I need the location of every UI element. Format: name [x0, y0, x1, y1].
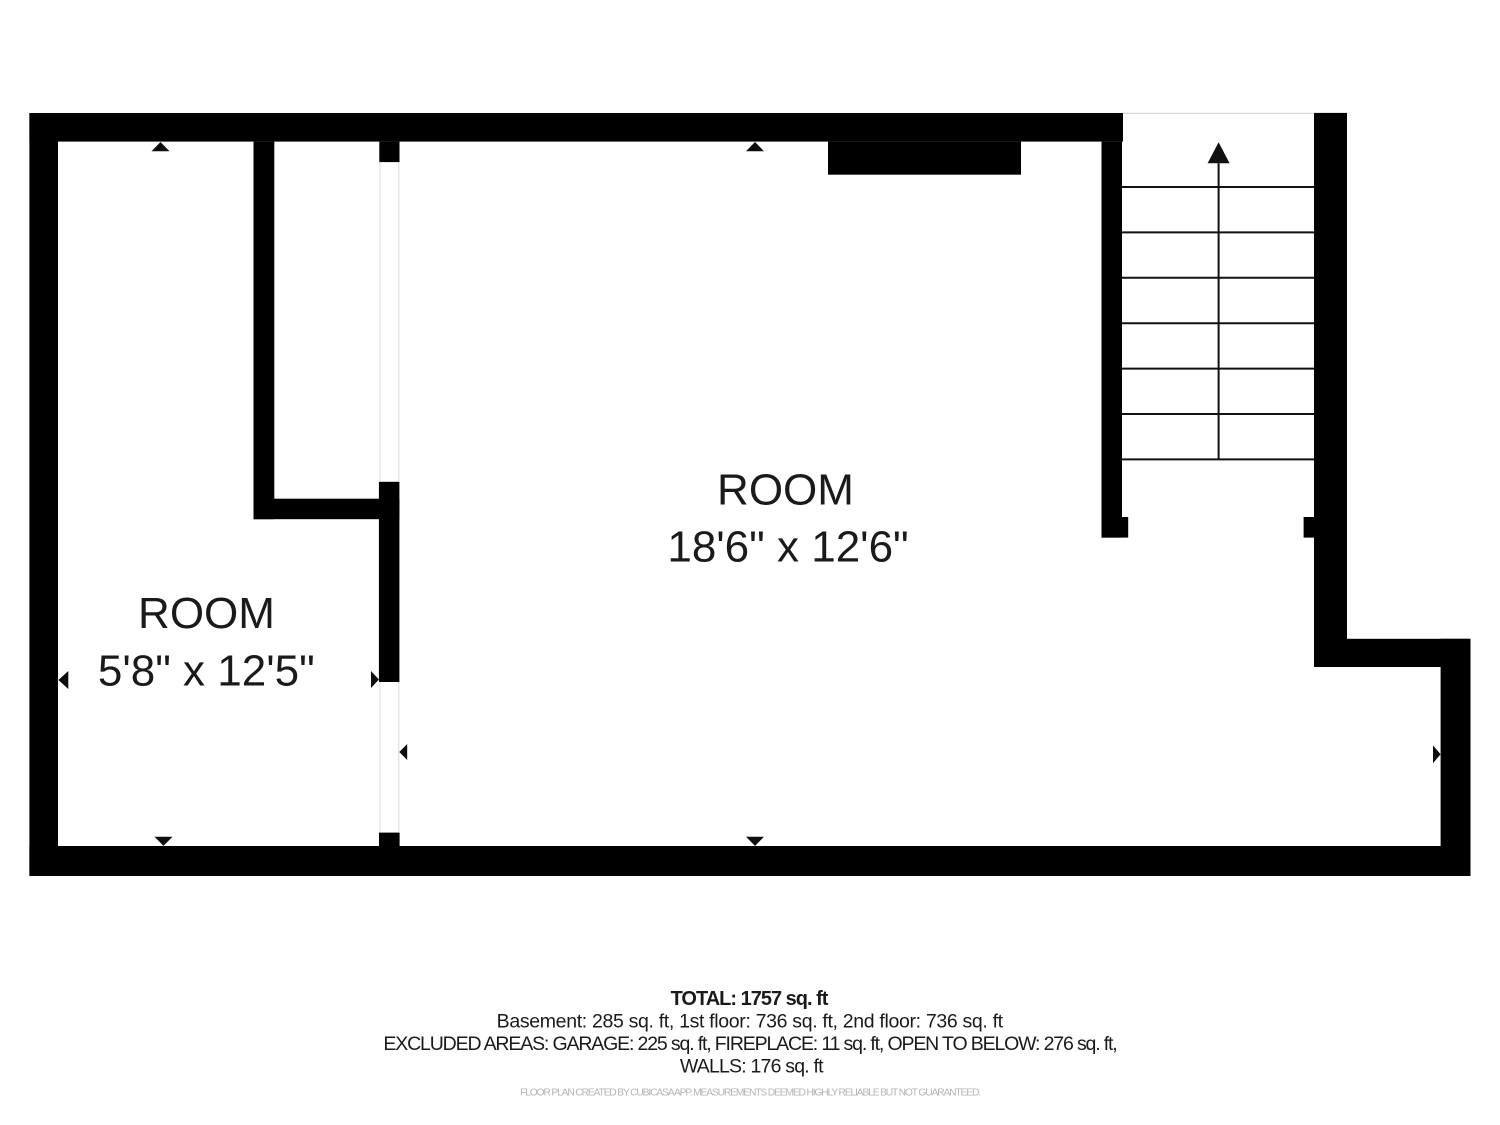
svg-text:TOTAL: 1757 sq. ft: TOTAL: 1757 sq. ft	[671, 988, 829, 1010]
svg-text:5'8" x 12'5": 5'8" x 12'5"	[98, 647, 315, 696]
svg-text:Basement: 285 sq. ft, 1st floo: Basement: 285 sq. ft, 1st floor: 736 sq.…	[497, 1010, 1004, 1032]
svg-text:FLOOR PLAN CREATED BY CUBICASA: FLOOR PLAN CREATED BY CUBICASA APP. MEAS…	[520, 1088, 980, 1099]
svg-text:ROOM: ROOM	[717, 466, 854, 515]
svg-text:WALLS: 176 sq. ft: WALLS: 176 sq. ft	[680, 1055, 824, 1077]
svg-text:EXCLUDED AREAS: GARAGE: 225 sq: EXCLUDED AREAS: GARAGE: 225 sq. ft, FIRE…	[383, 1033, 1116, 1055]
svg-text:ROOM: ROOM	[138, 589, 275, 638]
svg-text:18'6" x 12'6": 18'6" x 12'6"	[667, 523, 908, 572]
